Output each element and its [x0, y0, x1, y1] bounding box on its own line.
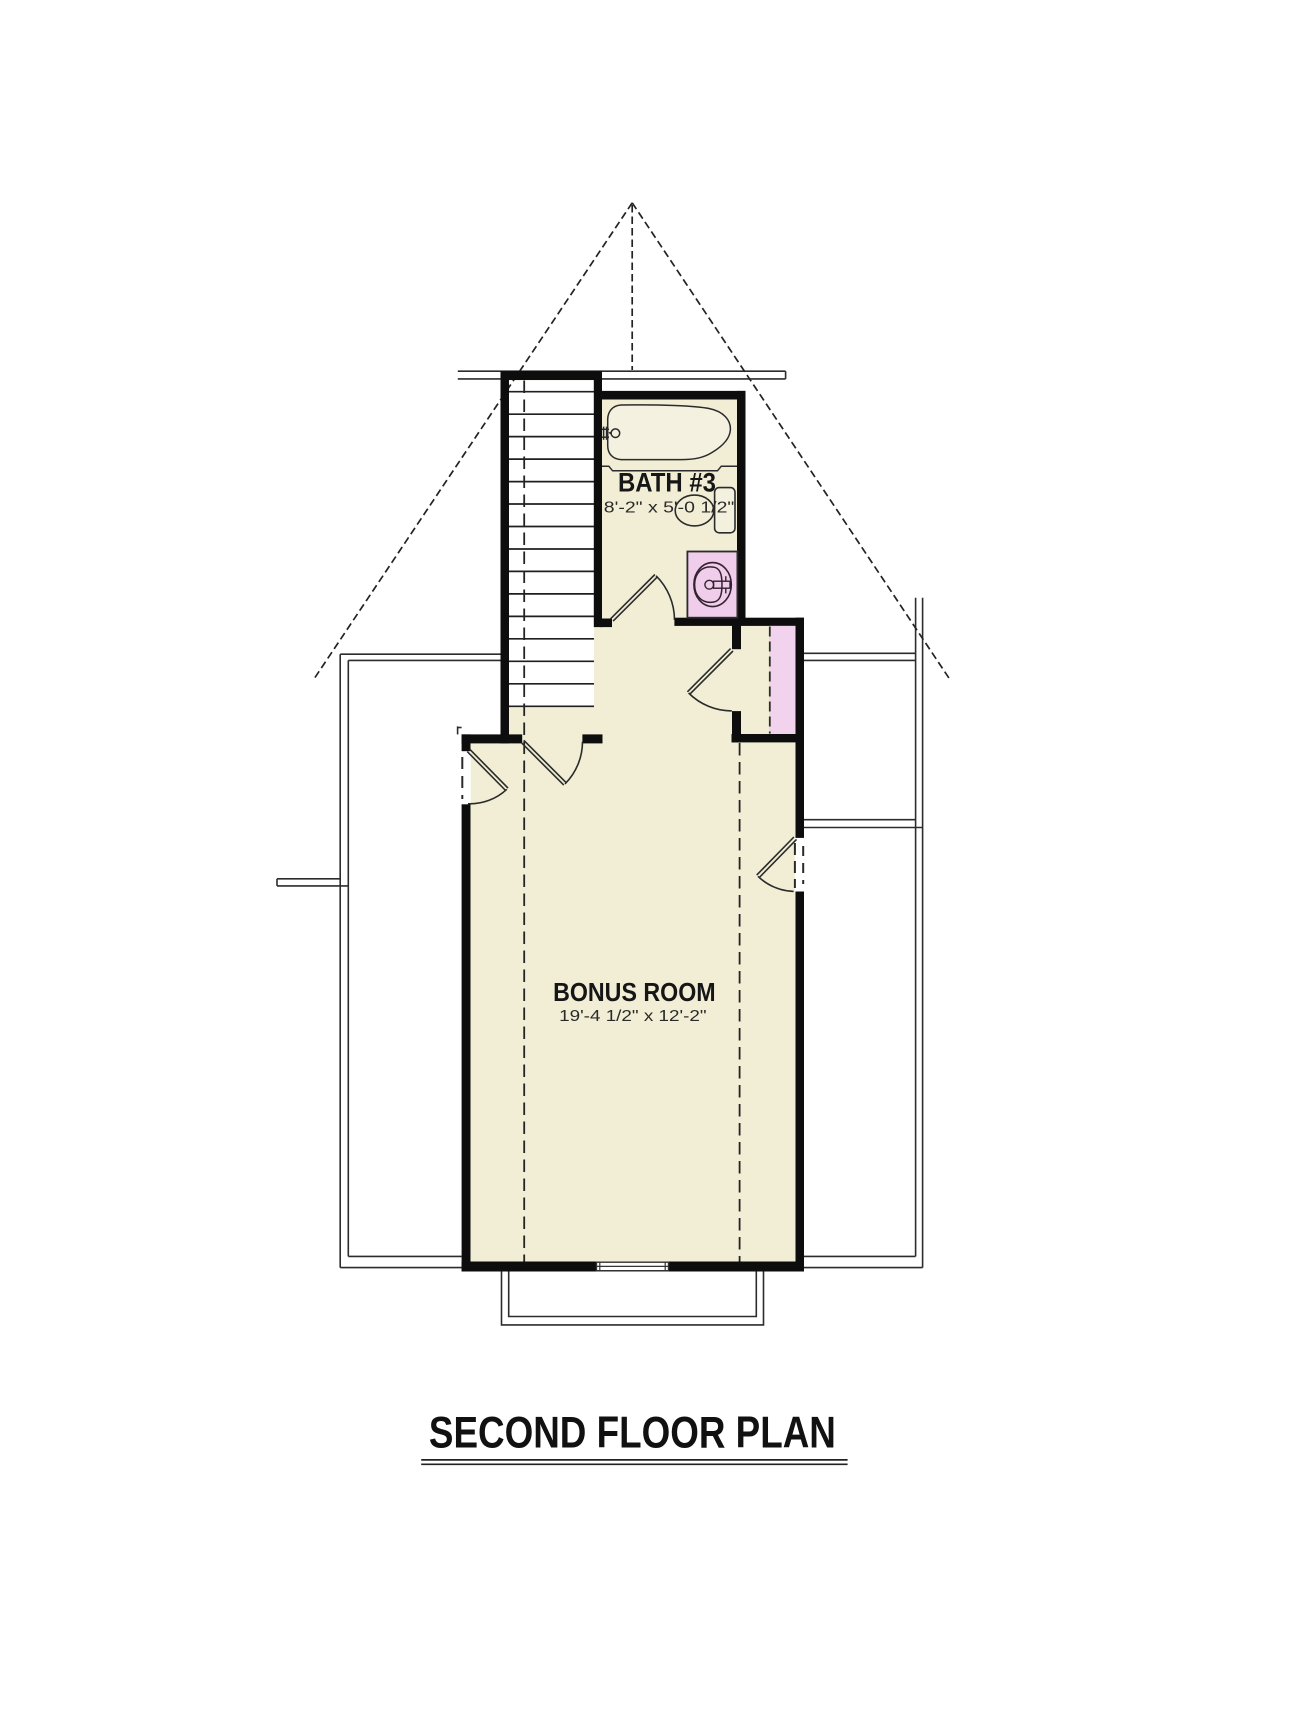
svg-text:19'-4 1/2" x 12'-2": 19'-4 1/2" x 12'-2": [559, 1008, 707, 1025]
svg-text:BATH #3: BATH #3: [618, 468, 716, 498]
svg-text:SECOND FLOOR PLAN: SECOND FLOOR PLAN: [429, 1409, 836, 1458]
svg-text:BONUS ROOM: BONUS ROOM: [553, 977, 716, 1007]
svg-text:8'-2" x 5'-0 1/2": 8'-2" x 5'-0 1/2": [604, 499, 735, 516]
